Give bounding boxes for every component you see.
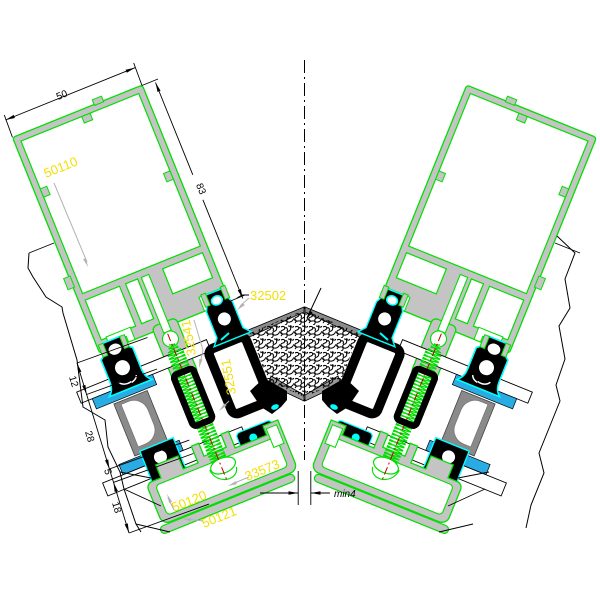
- svg-text:32502: 32502: [250, 288, 286, 303]
- svg-text:18: 18: [109, 501, 123, 515]
- svg-text:min4: min4: [334, 489, 356, 500]
- svg-text:28: 28: [82, 430, 96, 444]
- svg-text:50: 50: [55, 88, 70, 103]
- svg-text:12: 12: [66, 375, 80, 389]
- svg-text:83: 83: [193, 182, 208, 197]
